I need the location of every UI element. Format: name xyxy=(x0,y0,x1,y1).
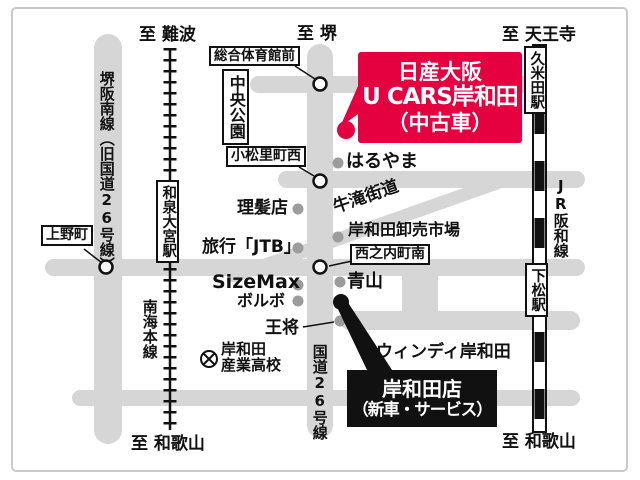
intersection-box-komatsuri: 小松里町西 xyxy=(226,146,306,167)
landmark-school-line2: 産業高校 xyxy=(221,358,281,374)
landmark-rihatsu: 理髪店 xyxy=(237,200,288,218)
landmark-osho: 王将 xyxy=(265,320,299,338)
landmark-sizemax: SizeMax xyxy=(212,273,300,293)
ucars-dealer-line2: U CARS岸和田 xyxy=(358,84,522,110)
railway-label-jr-hanwa: JR阪和線 xyxy=(552,177,568,258)
direction-to-namba: 至 難波 xyxy=(139,27,196,45)
road-label-sakai-hannan: 堺阪南線（旧国道26号線） xyxy=(98,71,114,272)
kishiwada-branch-line1: 岸和田店 xyxy=(347,378,497,401)
station-box-izumi-omiya: 和泉大宮駅 xyxy=(156,180,179,263)
direction-to-tennoji: 至 天王寺 xyxy=(502,27,576,45)
landmark-aoyama: 青山 xyxy=(347,273,383,292)
landmark-school: 岸和田 産業高校 xyxy=(221,342,281,374)
ucars-location-pin xyxy=(337,86,358,139)
intersection-box-sogo-taiikukan: 総合体育館前 xyxy=(209,46,300,66)
circle-sogo-taiikukan xyxy=(314,78,327,91)
ucars-dealer-line1: 日産大阪 xyxy=(358,60,522,84)
ucars-dealer-box: 日産大阪 U CARS岸和田 （中古車） xyxy=(358,52,522,143)
landmark-jtb: 旅行「JTB」 xyxy=(202,239,301,257)
landmark-volvo: ボルボ xyxy=(237,293,285,310)
landmark-windy: ウィンディ岸和田 xyxy=(376,344,511,362)
direction-to-wakayama-right: 至 和歌山 xyxy=(502,434,576,452)
dot-haruyama xyxy=(333,158,344,169)
intersection-box-nishinouchi: 西之内町南 xyxy=(350,244,430,265)
station-box-shimomatsu: 下松駅 xyxy=(525,263,548,317)
station-box-kumeda: 久米田駅 xyxy=(524,46,547,114)
landmark-box-chuo-koen: 中央公園 xyxy=(222,69,249,145)
direction-to-wakayama-left: 至 和歌山 xyxy=(131,436,205,454)
dot-oroshiuri xyxy=(333,232,344,243)
school-icon xyxy=(201,351,217,367)
kishiwada-branch-box: 岸和田店 （新車・サービス） xyxy=(347,370,497,427)
circle-komatsuri xyxy=(314,175,327,188)
dot-rihatsu xyxy=(293,204,304,215)
kishiwada-branch-line2: （新車・サービス） xyxy=(347,401,497,420)
ucars-dealer-line3: （中古車） xyxy=(358,111,522,135)
dot-aoyama xyxy=(335,277,346,288)
map-canvas: 至 難波 至 堺 至 天王寺 至 和歌山 至 和歌山 堺阪南線（旧国道26号線）… xyxy=(0,0,640,480)
railway-label-nankai: 南海本線 xyxy=(141,299,157,359)
circle-nishinouchi xyxy=(314,261,327,274)
dot-volvo xyxy=(293,296,304,307)
direction-to-sakai: 至 堺 xyxy=(297,26,337,44)
intersection-box-ueno: 上野町 xyxy=(41,225,93,246)
landmark-haruyama: はるやま xyxy=(346,153,418,172)
road-label-route26: 国道26号線 xyxy=(311,344,327,440)
road-connector-vertical xyxy=(402,263,438,321)
landmark-oroshiuri: 岸和田卸売市場 xyxy=(348,222,460,239)
